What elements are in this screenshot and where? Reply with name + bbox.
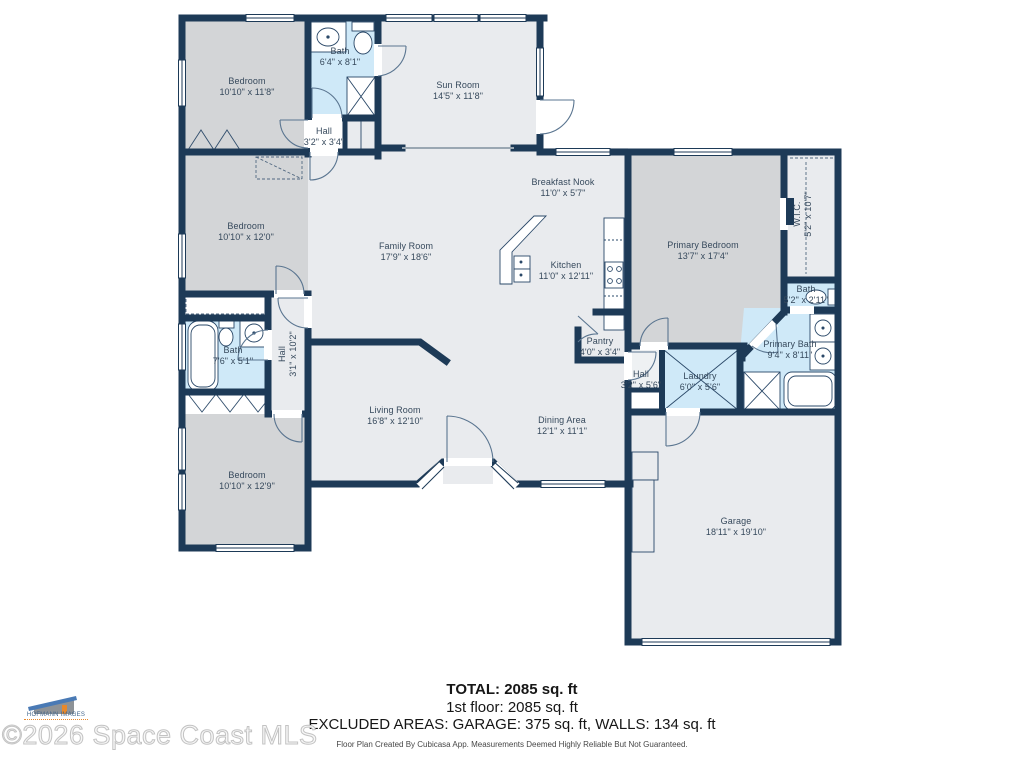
room-label-family-room: Family Room17'9" x 18'6" xyxy=(379,241,433,263)
room-label-sun-room: Sun Room14'5" x 11'8" xyxy=(433,80,483,102)
room-label-wic: W.I.C.5'2" x 10'7" xyxy=(792,191,814,237)
mls-copyright-text: ©2026 Space Coast MLS xyxy=(2,720,318,751)
room-label-bath-top: Bath6'4" x 8'1" xyxy=(320,46,360,68)
watermark: HOFMANN IMAGES ©2026 Space Coast MLS xyxy=(0,692,260,752)
room-label-dining-area: Dining Area12'1" x 11'1" xyxy=(537,415,587,437)
room-label-hall-top: Hall3'2" x 3'4" xyxy=(304,126,344,148)
room-label-primary-bath: Primary Bath9'4" x 8'11" xyxy=(763,339,816,361)
room-label-bath-right: Bath5'2" x 2'11" xyxy=(784,284,829,306)
room-label-kitchen: Kitchen11'0" x 12'11" xyxy=(539,260,593,282)
room-label-bedroom-3: Bedroom10'10" x 12'9" xyxy=(219,470,275,492)
room-label-primary-bedroom: Primary Bedroom13'7" x 17'4" xyxy=(667,240,739,262)
floor-plan-page: Bedroom10'10" x 11'8" Bath6'4" x 8'1" Ha… xyxy=(0,0,1024,768)
room-label-hall-left: Hall3'1" x 10'2" xyxy=(277,331,299,377)
room-label-bedroom-1: Bedroom10'10" x 11'8" xyxy=(219,76,274,98)
room-label-bath-left: Bath7'6" x 5'1" xyxy=(213,345,253,367)
room-label-bedroom-2: Bedroom10'10" x 12'0" xyxy=(218,221,274,243)
room-label-living-room: Living Room16'8" x 12'10" xyxy=(367,405,423,427)
room-label-garage: Garage18'11" x 19'10" xyxy=(706,516,766,538)
room-label-breakfast-nook: Breakfast Nook11'0" x 5'7" xyxy=(532,177,595,199)
hofmann-images-logo-text: HOFMANN IMAGES xyxy=(24,712,88,720)
room-label-pantry: Pantry4'0" x 3'4" xyxy=(580,336,620,358)
room-label-hall-mid: Hall3'2" x 5'6" xyxy=(621,369,661,391)
room-label-laundry: Laundry6'0" x 5'6" xyxy=(680,371,720,393)
floor-plan-drawing xyxy=(0,0,1024,768)
